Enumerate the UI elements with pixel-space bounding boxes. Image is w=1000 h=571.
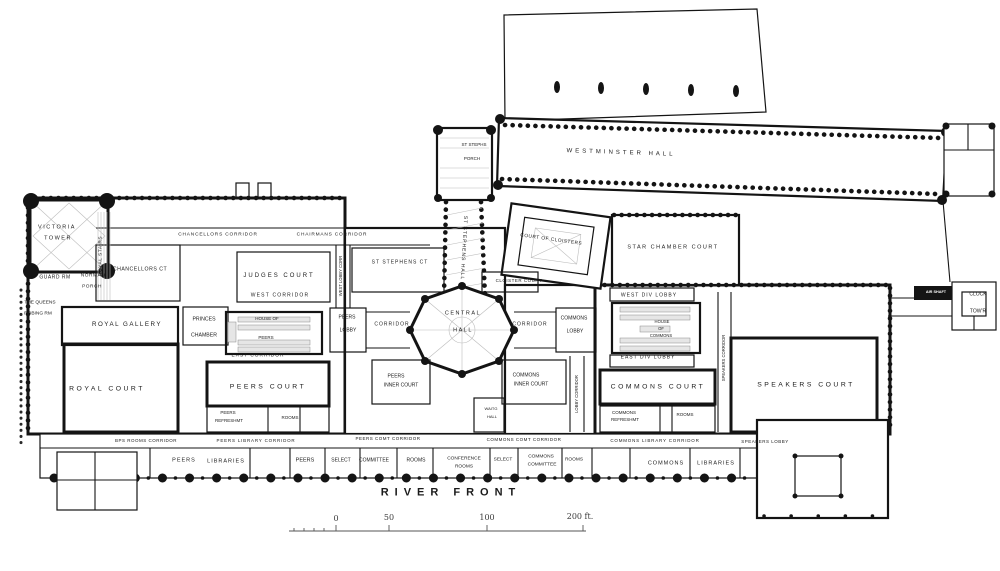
room-label-commons-inner-court-1: COMMONS [513, 374, 540, 379]
room-label-scale-50: 50 [384, 514, 394, 522]
room-label-east-div-lobby: EAST DIV LOBBY [621, 356, 676, 361]
room-label-commons-select-4: ROOMS [565, 459, 583, 464]
room-label-clock-tower-2: TOW'R [970, 310, 986, 315]
room-label-central-hall-1: CENTRAL [445, 311, 481, 317]
room-label-speakers-court: SPEAKERS COURT [757, 383, 855, 390]
room-label-chancellors-court: CHANCELLORS CT [113, 267, 167, 272]
room-label-west-div-lobby: WEST DIV LOBBY [621, 294, 677, 299]
room-label-commons-committee-corridor: COMMONS COMT CORRIDOR [487, 438, 562, 443]
room-label-st-stephens-hall: ST STEPHENS HALL [459, 216, 467, 281]
room-label-victoria-tower-2: TOWER [44, 236, 72, 242]
room-label-east-corridor: EAST CORRIDOR [232, 355, 285, 360]
room-label-st-stephens-porch-2: PORCH [464, 157, 480, 162]
room-label-house-of-commons-2: OF [658, 327, 664, 331]
room-label-peers-lobby-2: LOBBY [340, 329, 357, 334]
floor-plan: VICTORIATOWERGUARD RMNORMANPORCHROYAL ST… [0, 0, 1000, 571]
room-label-scale-0: 0 [333, 515, 338, 523]
room-label-commons-select-3: COMMITTEE [528, 464, 557, 469]
room-label-speakers-corridor: SPEAKERS CORRIDOR [722, 335, 726, 382]
room-label-peers-room-bottom: PEERS [296, 458, 315, 464]
room-label-select-committee-3: ROOMS [407, 459, 426, 464]
room-label-commons-select-2: COMMONS [528, 456, 554, 461]
room-label-commons-libraries-1: COMMONS [648, 461, 684, 467]
room-label-cloister-court: CLOISTER COURT [496, 279, 543, 284]
room-label-guard-room: GUARD RM [39, 276, 70, 281]
room-label-star-chamber-court: STAR CHAMBER COURT [627, 245, 718, 251]
room-label-waiting-hall-1: WAITG [485, 407, 498, 411]
room-label-river-front: RIVER FRONT [381, 488, 522, 499]
room-label-peers-inner-court-1: PEERS [388, 375, 405, 380]
room-label-peers-lobby-1: PEERS [339, 316, 356, 321]
room-label-speakers-lobby: SPEAKERS LOBBY [741, 440, 789, 445]
room-label-commons-refreshment-1: COMMONS [612, 411, 636, 416]
room-label-chancellors-corridor: CHANCELLORS CORRIDOR [178, 234, 257, 239]
room-label-central-hall-2: HALL [453, 328, 473, 334]
room-label-select-committee-2: COMMITTEE [359, 459, 389, 464]
room-label-bps-rooms-corridor: BPS ROOMS CORRIDOR [115, 439, 177, 444]
room-label-commons-corridor: CORRIDOR [512, 323, 547, 328]
room-label-select-committee-1: SELECT [331, 459, 350, 464]
room-label-peers-committee-corridor: PEERS COMT CORRIDOR [356, 437, 421, 442]
room-label-conference-rooms-1: CONFERENCE [447, 458, 481, 463]
room-label-commons-lobby-1: COMMONS [561, 317, 588, 322]
room-labels-layer: VICTORIATOWERGUARD RMNORMANPORCHROYAL ST… [0, 0, 1000, 571]
room-label-princes-chamber-1: PRINCES [192, 317, 215, 322]
room-label-chairmans-corridor: CHAIRMANS CORRIDOR [297, 234, 368, 239]
room-label-queens-robing-2: ROBING RM [24, 313, 52, 318]
room-label-norman-porch-2: PORCH [82, 286, 102, 291]
room-label-commons-refreshment-rooms: ROOMS [676, 413, 693, 418]
room-label-scale-200: 200 ft. [567, 513, 594, 521]
room-label-waiting-hall-2: HALL [487, 415, 497, 419]
room-label-commons-refreshment-2: REFRESHMT [611, 418, 639, 423]
room-label-peers-refreshment-rooms: ROOMS [281, 416, 298, 421]
room-label-west-corridor: WEST CORRIDOR [251, 294, 310, 299]
room-label-house-of-peers-2: PEERS [258, 336, 273, 341]
room-label-peers-refreshment-2: REFRESHMT [215, 419, 243, 424]
room-label-queens-robing-1: THE QUEENS [24, 302, 55, 307]
room-label-conference-rooms-2: ROOMS [455, 466, 473, 471]
room-label-peers-library-corridor: PEERS LIBRARY CORRIDOR [217, 439, 296, 444]
room-label-commons-select-1: SELECT [494, 459, 513, 464]
room-label-royal-court: ROYAL COURT [69, 387, 145, 394]
room-label-st-stephens-porch-1: ST STEPHS [462, 143, 487, 148]
room-label-lobby-corridor: LOBBY CORRIDOR [575, 375, 579, 413]
room-label-peers-libraries-1: PEERS [172, 458, 196, 464]
room-label-clock-tower-1: CLOCK [969, 293, 986, 298]
room-label-judges-court: JUDGES COURT [243, 273, 314, 279]
room-label-royal-stairs: ROYAL STAIRS [100, 236, 105, 276]
room-label-st-stephens-court: ST STEPHENS CT [372, 261, 429, 266]
room-label-princes-chamber-2: CHAMBER [191, 333, 217, 338]
room-label-royal-gallery: ROYAL GALLERY [92, 322, 162, 328]
room-label-scale-100: 100 [479, 514, 494, 522]
room-label-house-of-peers-1: HOUSE OF [255, 317, 279, 322]
room-label-peers-refreshment-1: PEERS [220, 411, 235, 416]
room-label-commons-lobby-2: LOBBY [567, 330, 584, 335]
room-label-commons-libraries-2: LIBRARIES [697, 461, 735, 467]
room-label-commons-court: COMMONS COURT [611, 385, 706, 392]
room-label-air-shaft: AIR SHAFT [926, 291, 946, 295]
room-label-peers-corridor: CORRIDOR [374, 323, 409, 328]
room-label-west-lobby-corridor: WEST LOBBY CORR [339, 256, 343, 297]
room-label-court-of-cloisters: COURT OF CLOISTERS [520, 234, 582, 247]
room-label-peers-libraries-2: LIBRARIES [207, 459, 245, 465]
room-label-house-of-commons-3: COMMONS [650, 334, 672, 338]
room-label-westminster-hall: WESTMINSTER HALL [566, 148, 675, 158]
room-label-peers-court: PEERS COURT [230, 385, 306, 392]
room-label-commons-inner-court-2: INNER COURT [514, 383, 549, 388]
room-label-peers-inner-court-2: INNER COURT [384, 384, 419, 389]
room-label-house-of-commons-1: HOUSE [655, 320, 670, 324]
room-label-commons-library-corridor: COMMONS LIBRARY CORRIDOR [610, 439, 699, 444]
room-label-victoria-tower-1: VICTORIA [38, 225, 76, 231]
